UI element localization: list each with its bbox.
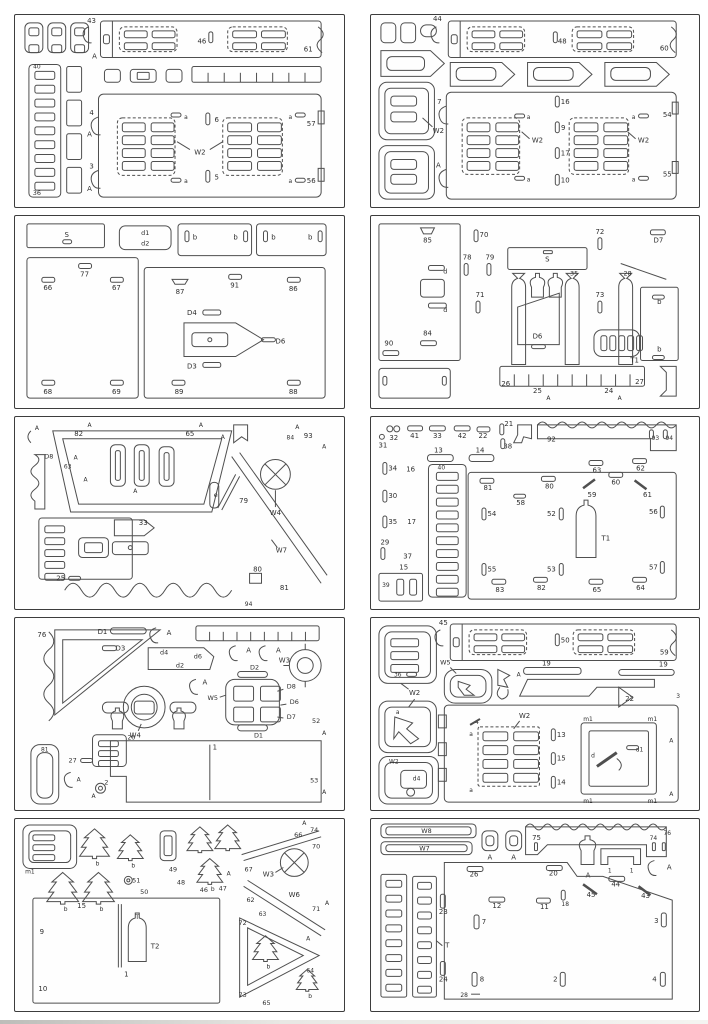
sheet-7-drawing: 76D1D3Ad4d6d2AAW3D2D8D6D7D1AW5W426278115… bbox=[15, 618, 344, 810]
part-outline bbox=[44, 632, 54, 721]
slot bbox=[436, 575, 458, 583]
part-label: 65 bbox=[186, 430, 195, 438]
slot bbox=[496, 136, 519, 145]
part-outline bbox=[91, 117, 100, 135]
tree-part bbox=[197, 859, 223, 885]
part-label: 48 bbox=[558, 38, 567, 46]
slot bbox=[45, 550, 65, 557]
part-outline bbox=[605, 63, 669, 87]
part-line bbox=[244, 837, 322, 861]
part-label: A bbox=[246, 647, 251, 655]
part-label: 40 bbox=[33, 63, 41, 70]
sheet-grid: 43A46614036W2aaaa6557564A3A444860W216W2W… bbox=[14, 14, 700, 1012]
slot bbox=[483, 760, 508, 769]
part-outline bbox=[238, 725, 268, 731]
panel-sheet-10: W8W7AA757476A11AT26204445432312111873248… bbox=[370, 818, 700, 1012]
part-label: 2 bbox=[104, 778, 108, 786]
part-outline bbox=[648, 861, 656, 876]
part-outline bbox=[413, 876, 437, 997]
part-label: T1 bbox=[629, 356, 639, 364]
part-outline bbox=[559, 508, 563, 520]
part-outline bbox=[515, 114, 525, 118]
part-outline bbox=[164, 836, 172, 856]
part-label: d4 bbox=[160, 649, 168, 657]
part-label: 67 bbox=[112, 284, 121, 292]
part-label: D3 bbox=[115, 645, 125, 653]
part-label: 72 bbox=[595, 228, 604, 236]
part-outline bbox=[560, 972, 565, 986]
part-label: 14 bbox=[476, 447, 485, 455]
slot bbox=[467, 149, 490, 158]
tree-part bbox=[253, 936, 279, 962]
part-label: A bbox=[87, 185, 92, 193]
part-label: A bbox=[74, 455, 79, 462]
slot bbox=[436, 498, 458, 506]
part-label: 71 bbox=[312, 905, 320, 913]
slot bbox=[474, 646, 497, 653]
slot bbox=[33, 835, 55, 841]
slot bbox=[122, 136, 145, 145]
slot bbox=[608, 634, 633, 641]
part-label: 29 bbox=[380, 539, 389, 547]
slot bbox=[391, 652, 419, 660]
slot bbox=[386, 955, 402, 962]
part-label: a bbox=[396, 709, 400, 716]
part-outline bbox=[33, 898, 220, 1003]
part-label: 56 bbox=[307, 177, 316, 185]
part-outline bbox=[652, 356, 664, 360]
part-label: 73 bbox=[595, 291, 604, 299]
slot bbox=[467, 136, 490, 145]
slot bbox=[261, 686, 281, 701]
part-label: 67 bbox=[244, 865, 252, 873]
slot bbox=[436, 550, 458, 558]
slot bbox=[483, 746, 508, 755]
slot bbox=[98, 751, 118, 757]
part-label: 80 bbox=[253, 565, 262, 573]
part-outline bbox=[166, 69, 182, 82]
slot bbox=[604, 123, 628, 132]
part-outline bbox=[104, 69, 120, 82]
scan-edge-band bbox=[0, 1020, 708, 1024]
part-label: 74 bbox=[650, 835, 658, 842]
slot bbox=[483, 732, 508, 741]
part-label: 57 bbox=[649, 563, 658, 571]
part-outline bbox=[670, 630, 676, 656]
part-outline bbox=[534, 577, 548, 582]
part-outline bbox=[635, 480, 647, 489]
part-label: b bbox=[308, 993, 312, 1000]
slot bbox=[514, 746, 539, 755]
part-label: D3 bbox=[187, 362, 197, 370]
part-outline bbox=[598, 238, 602, 250]
part-label: 86 bbox=[289, 285, 298, 293]
part-outline bbox=[672, 102, 678, 114]
part-outline bbox=[111, 708, 124, 729]
part-outline bbox=[515, 176, 525, 180]
part-outline bbox=[139, 451, 144, 481]
part-outline bbox=[438, 715, 446, 728]
wheel-part bbox=[131, 694, 157, 720]
comb-part bbox=[196, 626, 319, 641]
part-label: A bbox=[618, 395, 623, 402]
wheel-part bbox=[208, 338, 212, 342]
part-label: 94 bbox=[245, 601, 253, 608]
part-label: W2 bbox=[433, 127, 444, 135]
part-outline bbox=[555, 634, 559, 646]
part-outline bbox=[535, 843, 538, 851]
part-label: 64 bbox=[306, 967, 314, 974]
part-outline bbox=[526, 827, 667, 857]
part-label: 16 bbox=[561, 98, 570, 106]
part-outline bbox=[383, 351, 399, 356]
wheel-part bbox=[127, 879, 130, 882]
part-outline bbox=[450, 675, 486, 697]
part-label: D6 bbox=[290, 698, 299, 706]
part-label: 71 bbox=[476, 291, 485, 299]
part-label: A bbox=[325, 900, 330, 907]
part-label: 15 bbox=[77, 902, 86, 910]
part-label: D1 bbox=[98, 628, 108, 636]
part-label: a bbox=[632, 114, 636, 121]
wheel-part bbox=[394, 426, 400, 432]
part-outline bbox=[528, 63, 592, 87]
slot bbox=[35, 99, 55, 107]
part-label: A bbox=[511, 854, 516, 862]
part-label: D8 bbox=[44, 453, 53, 461]
part-outline bbox=[110, 628, 146, 634]
part-label: a bbox=[527, 114, 531, 121]
part-label: 81 bbox=[280, 584, 289, 592]
slot bbox=[514, 732, 539, 741]
slot bbox=[152, 43, 175, 50]
part-outline bbox=[609, 472, 623, 477]
part-label: 43 bbox=[87, 17, 96, 25]
part-outline bbox=[37, 753, 53, 799]
part-label: 1 bbox=[213, 744, 217, 752]
part-label: D7 bbox=[654, 237, 664, 245]
part-outline bbox=[383, 516, 387, 528]
slot bbox=[233, 43, 257, 50]
part-outline bbox=[469, 455, 494, 462]
panel-sheet-8: 36W2aW2d4455059W5A19192234W2aa131514m1m1… bbox=[370, 617, 700, 811]
part-outline bbox=[287, 277, 300, 282]
part-label: 4 bbox=[89, 109, 94, 117]
part-outline bbox=[500, 424, 504, 435]
slot bbox=[418, 912, 432, 919]
part-label: 83 bbox=[495, 586, 504, 594]
slot bbox=[52, 45, 62, 53]
part-label: 51 bbox=[132, 876, 140, 884]
part-outline bbox=[385, 152, 429, 194]
slot bbox=[67, 66, 82, 92]
part-outline bbox=[551, 753, 555, 765]
slot bbox=[228, 136, 252, 145]
slot bbox=[604, 149, 628, 158]
part-label: T2 bbox=[150, 943, 160, 951]
part-outline bbox=[391, 159, 417, 169]
part-outline bbox=[295, 178, 305, 182]
sheet-6-drawing: 3241334222213138131416343035172937153940… bbox=[371, 417, 699, 609]
part-label: d bbox=[443, 306, 447, 314]
part-label: T bbox=[134, 914, 139, 921]
slot bbox=[258, 123, 282, 132]
part-outline bbox=[137, 72, 149, 79]
sheet-1-drawing: 43A46614036W2aaaa6557564A3A bbox=[15, 15, 344, 207]
part-outline bbox=[510, 836, 518, 846]
part-label: A bbox=[322, 789, 327, 796]
slot bbox=[436, 524, 458, 532]
part-outline bbox=[514, 494, 526, 498]
part-label: A bbox=[92, 53, 97, 61]
sheet-8-drawing: 36W2aW2d4455059W5A19192234W2aa131514m1m1… bbox=[371, 618, 699, 810]
part-outline bbox=[660, 561, 664, 573]
part-outline bbox=[476, 301, 480, 313]
slot bbox=[33, 855, 55, 861]
part-outline bbox=[611, 67, 651, 80]
tree-part bbox=[83, 872, 115, 904]
part-label: 46 bbox=[200, 886, 208, 894]
wheel-part bbox=[96, 783, 106, 793]
part-label: W5 bbox=[440, 659, 450, 667]
part-outline bbox=[553, 32, 557, 43]
slot bbox=[391, 639, 419, 647]
part-outline bbox=[439, 106, 448, 124]
slot bbox=[577, 31, 602, 38]
tree-part bbox=[187, 827, 213, 853]
part-outline bbox=[454, 426, 470, 431]
part-label: 41 bbox=[410, 432, 419, 440]
part-label: 11 bbox=[540, 903, 549, 911]
wheel-part bbox=[407, 788, 415, 796]
slot bbox=[574, 123, 598, 132]
slot bbox=[228, 161, 252, 170]
part-label: 27 bbox=[69, 757, 77, 765]
slot bbox=[122, 161, 145, 170]
part-outline bbox=[534, 67, 574, 80]
slot bbox=[467, 123, 490, 132]
part-outline bbox=[387, 57, 425, 71]
part-outline bbox=[91, 170, 100, 188]
part-outline bbox=[42, 277, 55, 282]
slot bbox=[418, 942, 432, 949]
part-label: a bbox=[632, 176, 636, 183]
slot bbox=[418, 927, 432, 934]
part-line bbox=[409, 699, 415, 707]
part-outline bbox=[565, 273, 579, 364]
part-label: 6 bbox=[215, 116, 219, 124]
slot bbox=[35, 155, 55, 163]
part-label: 3 bbox=[654, 917, 658, 925]
slot bbox=[386, 925, 402, 932]
part-outline bbox=[173, 708, 186, 729]
slot bbox=[601, 336, 607, 351]
part-label: A bbox=[546, 395, 551, 402]
part-outline bbox=[391, 112, 417, 122]
part-label: 78 bbox=[463, 254, 472, 262]
part-outline bbox=[660, 366, 676, 396]
part-outline bbox=[190, 679, 198, 694]
wheel-part bbox=[124, 876, 132, 884]
part-label: b bbox=[193, 234, 198, 242]
part-label: 25 bbox=[533, 387, 542, 395]
slot bbox=[604, 161, 628, 170]
part-label: A bbox=[322, 730, 327, 737]
slot bbox=[67, 167, 82, 193]
part-label: W7 bbox=[419, 845, 429, 853]
part-label: 3 bbox=[89, 162, 93, 170]
part-label: A bbox=[133, 488, 138, 495]
part-label: 31 bbox=[378, 442, 387, 450]
part-line bbox=[514, 721, 520, 729]
slot bbox=[122, 149, 145, 158]
wave-part bbox=[65, 583, 232, 597]
part-label: 12 bbox=[492, 902, 501, 910]
slot bbox=[574, 136, 598, 145]
part-outline bbox=[427, 455, 453, 462]
part-label: 32 bbox=[389, 434, 398, 442]
part-label: b bbox=[271, 234, 276, 242]
part-outline bbox=[379, 626, 436, 683]
part-label: W6 bbox=[289, 891, 300, 899]
part-label: 70 bbox=[480, 231, 489, 239]
part-label: 55 bbox=[663, 170, 672, 178]
part-label: b bbox=[308, 234, 313, 242]
panel-sheet-2: 444860W216W2W291710aaaa54557A bbox=[370, 14, 700, 208]
part-outline bbox=[172, 380, 185, 385]
part-label: 7 bbox=[482, 918, 486, 926]
part-outline bbox=[172, 279, 188, 284]
part-label: W3 bbox=[263, 870, 274, 878]
part-label: 90 bbox=[384, 340, 393, 348]
part-outline bbox=[480, 478, 494, 483]
part-outline bbox=[524, 667, 581, 674]
part-label: D4 bbox=[187, 309, 197, 317]
slot bbox=[233, 31, 257, 38]
part-label: 82 bbox=[74, 430, 83, 438]
part-label: a bbox=[184, 114, 188, 121]
part-outline bbox=[498, 669, 510, 687]
part-label: W2 bbox=[638, 137, 649, 145]
part-label: b bbox=[267, 963, 271, 970]
slot bbox=[607, 31, 632, 38]
part-label: 4 bbox=[652, 975, 657, 983]
part-outline bbox=[617, 759, 622, 771]
panel-sheet-1: 43A46614036W2aaaa6557564A3A bbox=[14, 14, 345, 208]
part-label: T bbox=[444, 942, 450, 950]
slot bbox=[151, 149, 174, 158]
part-outline bbox=[385, 762, 433, 798]
part-outline bbox=[486, 836, 494, 846]
part-outline bbox=[171, 113, 181, 117]
part-label: 73 bbox=[239, 991, 247, 999]
part-label: D7 bbox=[287, 713, 296, 721]
part-outline bbox=[203, 362, 221, 367]
part-outline bbox=[492, 579, 506, 584]
part-outline bbox=[63, 439, 222, 504]
part-label: 63 bbox=[64, 463, 72, 470]
part-label: A bbox=[199, 422, 204, 429]
wheel-part bbox=[379, 434, 384, 439]
part-outline bbox=[530, 273, 545, 297]
part-outline bbox=[514, 425, 532, 443]
part-label: 89 bbox=[175, 388, 184, 396]
slot bbox=[386, 880, 402, 887]
part-label: 85 bbox=[423, 237, 432, 245]
part-line bbox=[177, 142, 190, 150]
slot bbox=[35, 85, 55, 93]
part-label: 69 bbox=[112, 388, 121, 396]
slot bbox=[418, 957, 432, 964]
part-outline bbox=[39, 518, 132, 579]
part-outline bbox=[421, 228, 435, 234]
part-outline bbox=[551, 776, 555, 788]
slot bbox=[122, 123, 145, 132]
slot bbox=[75, 45, 85, 53]
part-outline bbox=[259, 646, 267, 661]
part-outline bbox=[576, 500, 596, 557]
part-label: e bbox=[214, 491, 218, 499]
part-outline bbox=[478, 727, 539, 786]
part-label: d bbox=[443, 267, 447, 275]
part-label: W2 bbox=[194, 149, 205, 157]
part-outline bbox=[85, 543, 103, 553]
part-outline bbox=[561, 890, 565, 900]
part-label: 92 bbox=[547, 436, 556, 444]
part-outline bbox=[391, 96, 417, 106]
part-outline bbox=[652, 843, 655, 851]
slot bbox=[607, 43, 632, 50]
part-label: 9 bbox=[561, 124, 565, 132]
part-label: a bbox=[289, 114, 293, 121]
sheet-2-drawing: 444860W216W2W291710aaaa54557A bbox=[371, 15, 699, 207]
part-label: A bbox=[87, 131, 92, 139]
part-outline bbox=[229, 646, 237, 661]
part-label: 16 bbox=[406, 465, 415, 473]
slot bbox=[472, 31, 495, 38]
part-label: W8 bbox=[421, 827, 431, 835]
part-outline bbox=[453, 638, 459, 647]
part-outline bbox=[209, 32, 213, 43]
part-line bbox=[242, 831, 320, 855]
slot bbox=[228, 123, 252, 132]
part-label: 26 bbox=[501, 380, 510, 388]
part-label: 37 bbox=[403, 553, 412, 561]
slot bbox=[500, 31, 523, 38]
part-outline bbox=[421, 279, 445, 297]
part-label: 42 bbox=[458, 432, 467, 440]
part-label: A bbox=[436, 161, 441, 169]
part-outline bbox=[429, 426, 445, 431]
part-outline bbox=[482, 831, 498, 851]
slot bbox=[151, 123, 174, 132]
slot bbox=[124, 43, 147, 50]
part-line bbox=[423, 118, 433, 127]
part-label: 25 bbox=[56, 574, 65, 582]
slot bbox=[502, 634, 525, 641]
part-outline bbox=[117, 118, 175, 175]
part-outline bbox=[438, 768, 446, 781]
part-label: m1 bbox=[583, 798, 593, 805]
part-outline bbox=[555, 148, 559, 159]
part-outline bbox=[110, 380, 123, 385]
part-label: W2 bbox=[389, 758, 399, 765]
part-outline bbox=[438, 743, 446, 756]
part-outline bbox=[401, 23, 416, 43]
part-label: 3 bbox=[676, 693, 680, 700]
part-label: m1 bbox=[25, 868, 35, 875]
part-outline bbox=[318, 231, 322, 242]
